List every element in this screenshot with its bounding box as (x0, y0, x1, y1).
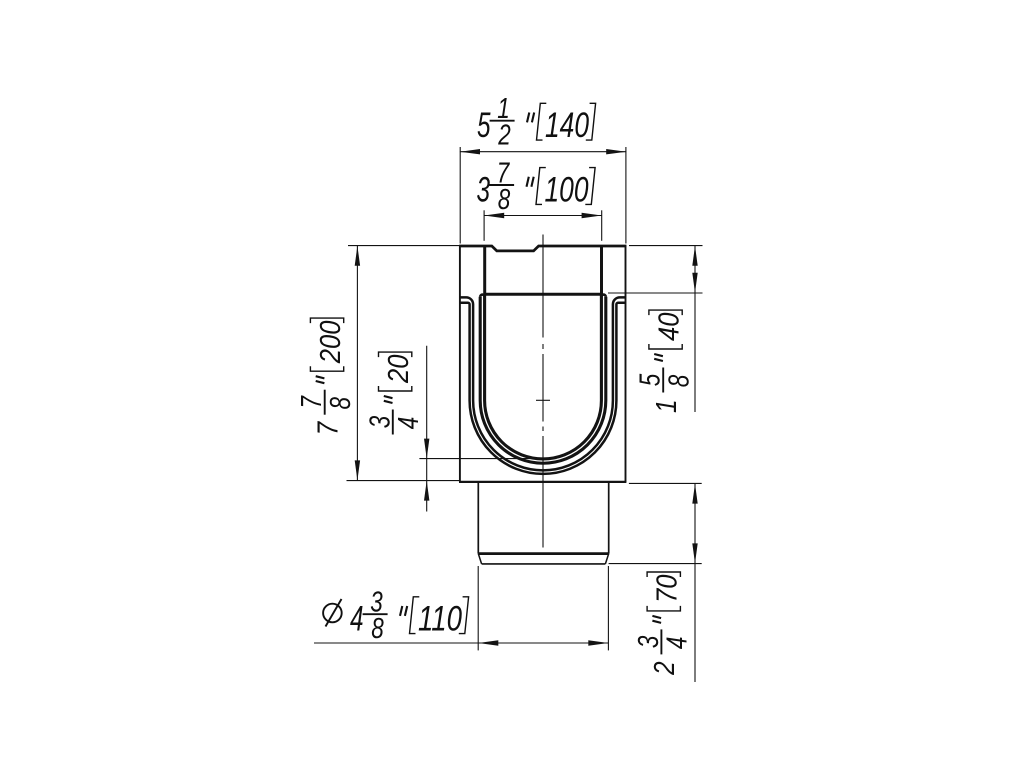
svg-text:7: 7 (312, 421, 344, 435)
svg-text:3: 3 (477, 170, 491, 209)
svg-text:7: 7 (296, 395, 328, 408)
svg-text:3: 3 (364, 416, 396, 429)
svg-text:4: 4 (662, 637, 694, 650)
svg-text:140: 140 (545, 106, 589, 145)
svg-text:2: 2 (497, 120, 510, 152)
svg-text:110: 110 (418, 600, 462, 639)
svg-text:20: 20 (383, 354, 415, 383)
svg-text:4: 4 (350, 600, 364, 639)
svg-text:3: 3 (633, 636, 665, 649)
svg-text:8: 8 (371, 613, 384, 645)
svg-text:8: 8 (663, 375, 695, 388)
svg-text:70: 70 (652, 574, 684, 603)
svg-text:40: 40 (653, 312, 685, 341)
svg-text:8: 8 (325, 397, 357, 410)
svg-text:100: 100 (545, 170, 589, 209)
svg-text:5: 5 (635, 374, 667, 387)
svg-text:8: 8 (498, 184, 511, 216)
svg-text:200: 200 (315, 320, 347, 364)
svg-text:2: 2 (649, 661, 681, 675)
svg-text:4: 4 (393, 417, 425, 430)
svg-text:1: 1 (651, 400, 683, 414)
svg-text:5: 5 (477, 106, 491, 145)
